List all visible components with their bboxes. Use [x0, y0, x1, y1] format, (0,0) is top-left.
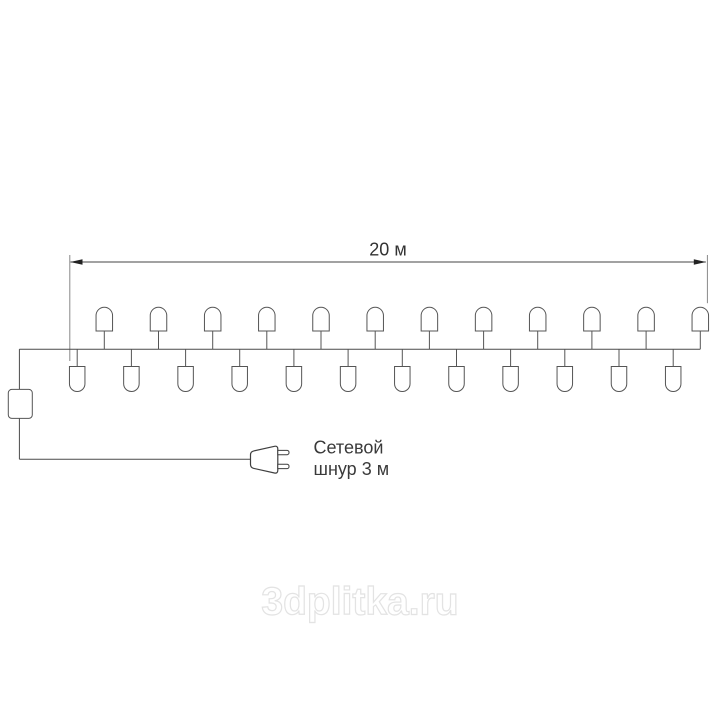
svg-text:20 м: 20 м — [369, 240, 406, 260]
svg-text:шнур 3 м: шнур 3 м — [314, 459, 390, 479]
svg-text:3dplitka.ru: 3dplitka.ru — [261, 581, 458, 624]
svg-text:Сетевой: Сетевой — [314, 437, 384, 457]
